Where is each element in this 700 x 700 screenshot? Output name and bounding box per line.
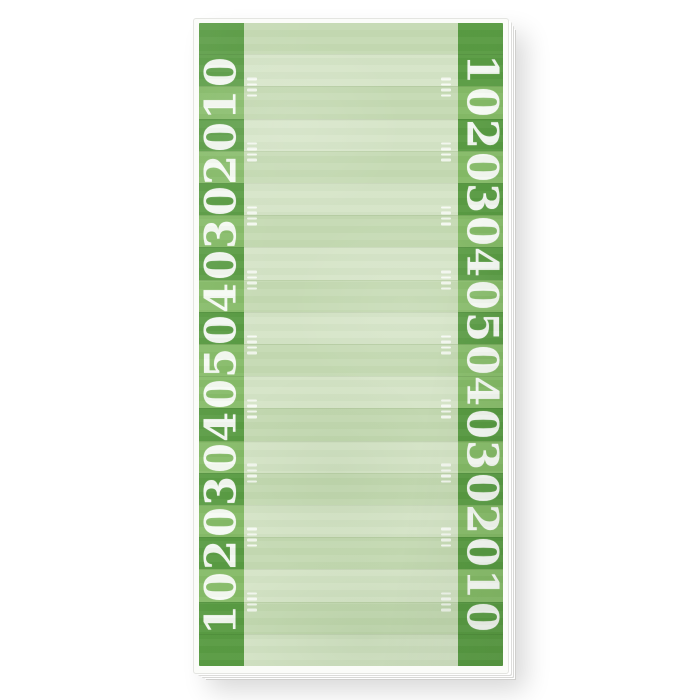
band-stripe: [199, 23, 244, 54]
band-stripe: [458, 183, 503, 215]
band-stripe: [199, 86, 244, 118]
field-stripe: [244, 602, 458, 634]
band-stripe: [458, 151, 503, 183]
band-stripe: [458, 376, 503, 408]
field-stripe: [244, 634, 458, 666]
field-stripe: [244, 23, 458, 54]
football-field-print: 102030405040302010 102030405040302010: [199, 23, 503, 666]
field-stripe: [244, 537, 458, 569]
band-stripe: [458, 505, 503, 537]
band-stripe: [458, 23, 503, 54]
field-stripe: [244, 505, 458, 537]
band-stripe: [199, 247, 244, 279]
band-stripe: [458, 602, 503, 634]
band-stripe: [458, 312, 503, 344]
field-stripe: [244, 86, 458, 118]
band-stripe: [458, 441, 503, 473]
yard-band-left: [199, 23, 244, 666]
band-stripe: [199, 312, 244, 344]
band-stripe: [458, 280, 503, 312]
band-stripe: [458, 408, 503, 440]
band-stripe: [458, 537, 503, 569]
band-stripe: [199, 473, 244, 505]
band-stripe: [199, 183, 244, 215]
band-stripe: [199, 151, 244, 183]
band-stripe: [199, 537, 244, 569]
band-stripe: [199, 505, 244, 537]
band-stripe: [199, 119, 244, 151]
band-stripe: [458, 247, 503, 279]
field-stripe: [244, 54, 458, 86]
band-stripe: [199, 215, 244, 247]
band-stripe: [199, 54, 244, 86]
field-stripe: [244, 569, 458, 601]
band-stripe: [199, 634, 244, 666]
band-stripe: [458, 119, 503, 151]
yard-band-right: [458, 23, 503, 666]
band-stripe: [199, 280, 244, 312]
band-stripe: [199, 408, 244, 440]
field-stripe: [244, 376, 458, 408]
field-stripe: [244, 119, 458, 151]
field-stripe: [244, 247, 458, 279]
band-stripe: [458, 473, 503, 505]
band-stripe: [199, 344, 244, 376]
band-stripe: [458, 634, 503, 666]
field-stripe: [244, 280, 458, 312]
field-stripes: [244, 23, 458, 666]
field-stripe: [244, 408, 458, 440]
band-stripe: [458, 54, 503, 86]
band-stripe: [458, 344, 503, 376]
band-stripe: [199, 441, 244, 473]
field-stripe: [244, 441, 458, 473]
band-stripe: [199, 376, 244, 408]
band-stripe: [199, 569, 244, 601]
field-stripe: [244, 312, 458, 344]
band-stripe: [458, 569, 503, 601]
band-stripe: [458, 215, 503, 247]
field-stripe: [244, 215, 458, 247]
field-stripe: [244, 151, 458, 183]
field-stripe: [244, 473, 458, 505]
field-stripe: [244, 183, 458, 215]
field-stripe: [244, 344, 458, 376]
band-stripe: [458, 86, 503, 118]
product-photo-background: { "background_color": "#ffffff", "notepa…: [0, 0, 700, 700]
notepad: 102030405040302010 102030405040302010: [193, 18, 509, 674]
band-stripe: [199, 602, 244, 634]
